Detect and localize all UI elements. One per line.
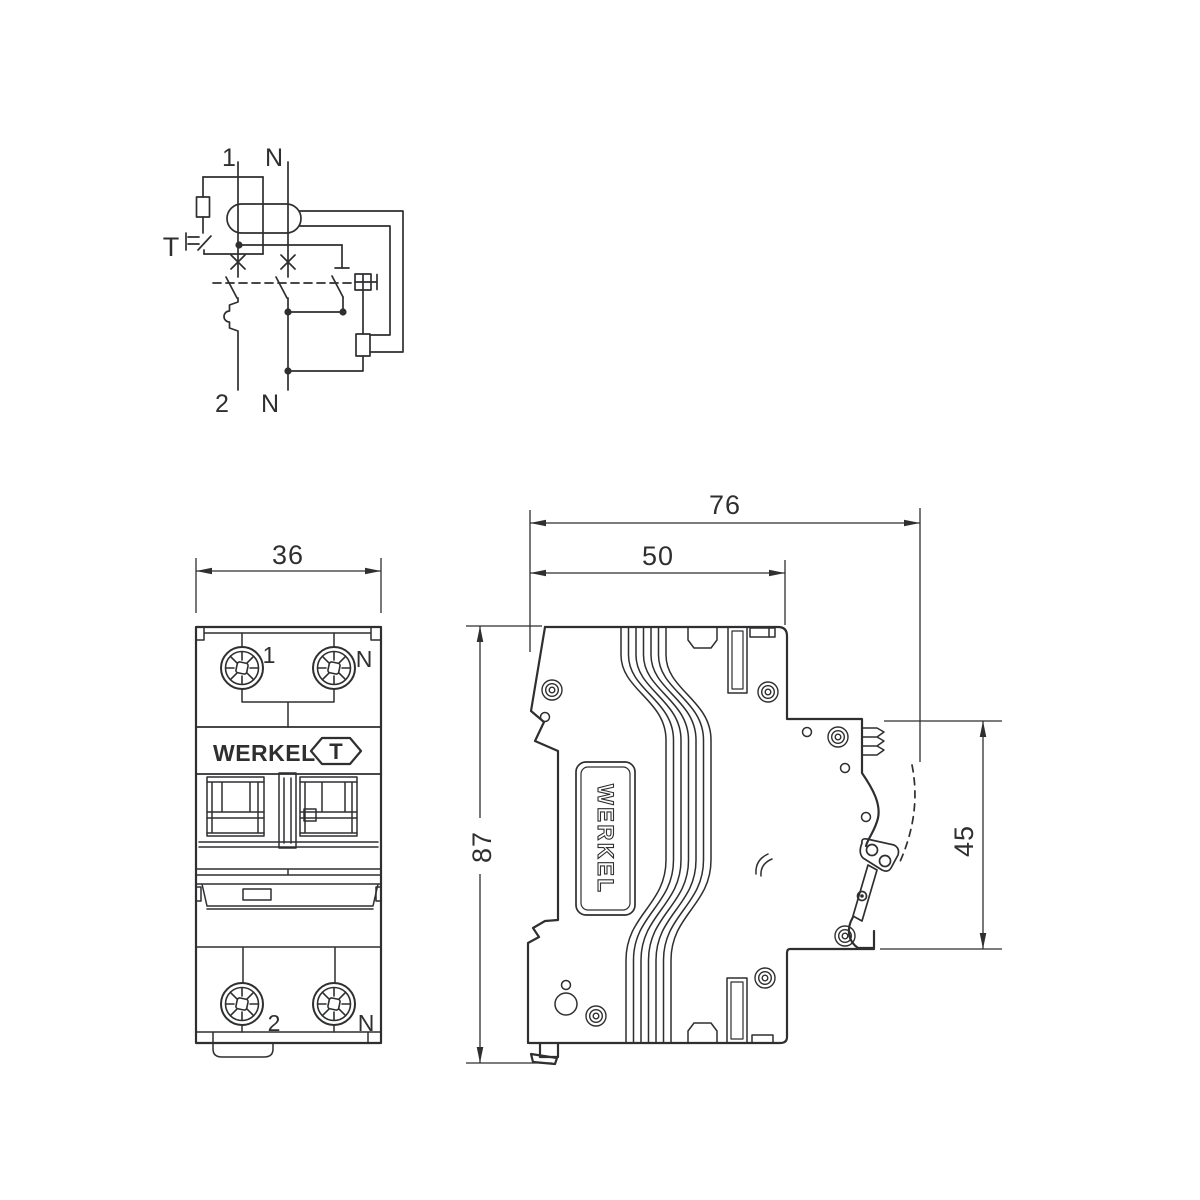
screw-terminal-bottom-left	[221, 983, 263, 1025]
schematic-label-2: 2	[215, 390, 229, 418]
front-width-dimension: 36	[196, 540, 381, 613]
front-terminal-label-n-top: N	[356, 646, 373, 672]
toggle-left[interactable]	[207, 777, 264, 836]
main-contacts	[226, 255, 343, 298]
side-brand-badge: WERKEL	[576, 762, 635, 915]
side-toggle-lever[interactable]	[853, 839, 899, 921]
drawing-page: 1 N T 2 N 36 1 N WERKEL T	[0, 0, 1200, 1200]
test-button-label[interactable]: T	[329, 739, 343, 764]
junction-dots	[235, 241, 346, 374]
lever-pivot-rivet	[835, 926, 855, 946]
side-terminal-serration	[862, 728, 884, 755]
front-brand-logo: WERKEL	[213, 740, 316, 766]
din-clip-side	[531, 1043, 558, 1064]
screw-terminal-top-right	[313, 647, 355, 689]
schematic-label-n-bottom: N	[261, 390, 279, 418]
front-bottom-edge	[196, 1025, 381, 1057]
front-terminal-label-1: 1	[263, 642, 276, 668]
side-top-features	[688, 627, 775, 693]
side-front-height-dimension: 45	[880, 721, 1002, 949]
side-dim-76-label: 76	[709, 490, 741, 520]
screw-terminal-top-left	[221, 647, 263, 689]
toggle-right[interactable]	[300, 777, 357, 836]
label-window	[243, 889, 271, 900]
schematic: 1 N T 2 N	[163, 144, 403, 418]
side-dim-50-label: 50	[642, 541, 674, 571]
front-body-outline	[196, 627, 381, 1043]
side-dim-45-label: 45	[949, 825, 979, 857]
front-brand-band: WERKEL T	[196, 727, 381, 774]
test-button-symbol	[186, 233, 211, 250]
side-brand-logo: WERKEL	[593, 784, 618, 894]
toggle-center-bar[interactable]	[279, 773, 296, 848]
case-holes	[541, 713, 871, 1016]
solenoid-symbol	[355, 274, 377, 290]
lever-travel-arc	[898, 765, 915, 866]
test-resistor-symbol	[197, 197, 210, 217]
screw-terminal-bottom-right	[313, 983, 355, 1025]
technical-drawing: 1 N T 2 N 36 1 N WERKEL T	[0, 0, 1200, 1200]
front-mid-section	[196, 869, 381, 983]
side-view: 76 50 87 45	[466, 490, 1002, 1064]
front-view: 36 1 N WERKEL T	[196, 540, 381, 1057]
relay-symbol	[356, 334, 370, 356]
release-symbol	[224, 298, 238, 390]
side-bottom-features	[688, 978, 773, 1043]
front-terminal-connectors	[242, 689, 334, 727]
schematic-label-test: T	[163, 232, 180, 262]
schematic-label-n-top: N	[265, 144, 283, 172]
schematic-wires	[203, 162, 403, 390]
side-height-dimension: 87	[466, 626, 552, 1063]
front-dim-36-label: 36	[272, 540, 304, 570]
toggle-switches[interactable]	[199, 773, 378, 848]
din-clip-front	[213, 1043, 273, 1057]
front-top-edge	[196, 627, 381, 647]
schematic-label-1: 1	[222, 144, 236, 172]
side-dim-87-label: 87	[467, 831, 497, 863]
